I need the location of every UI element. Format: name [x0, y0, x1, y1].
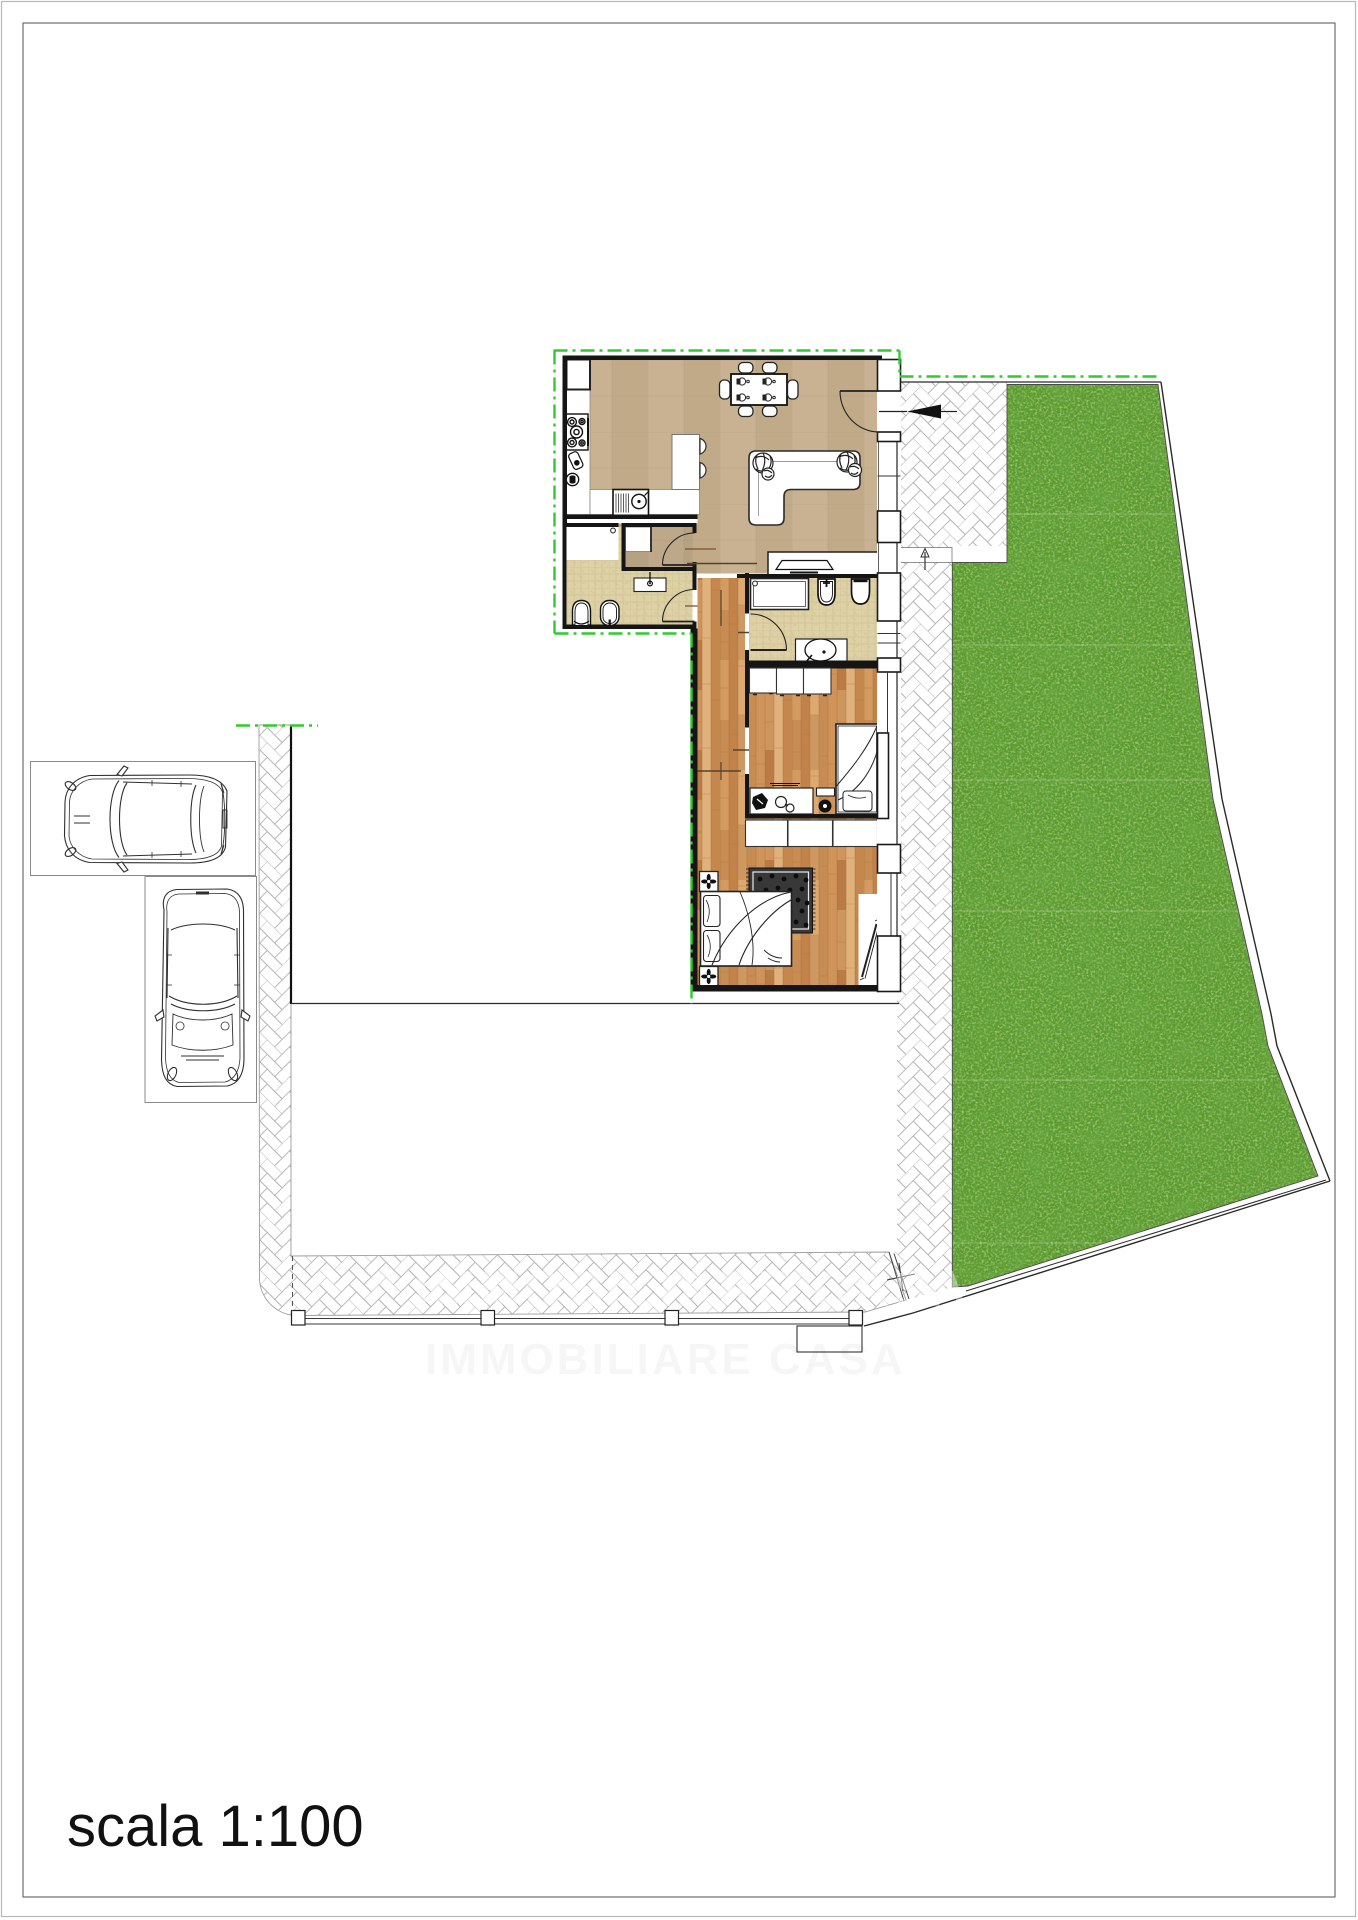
svg-text:IMMOBILIARE CASA: IMMOBILIARE CASA [415, 1261, 971, 1317]
svg-text:scala 1:100: scala 1:100 [67, 1794, 364, 1859]
svg-text:IMMOBILIARE CASA: IMMOBILIARE CASA [425, 1335, 906, 1384]
